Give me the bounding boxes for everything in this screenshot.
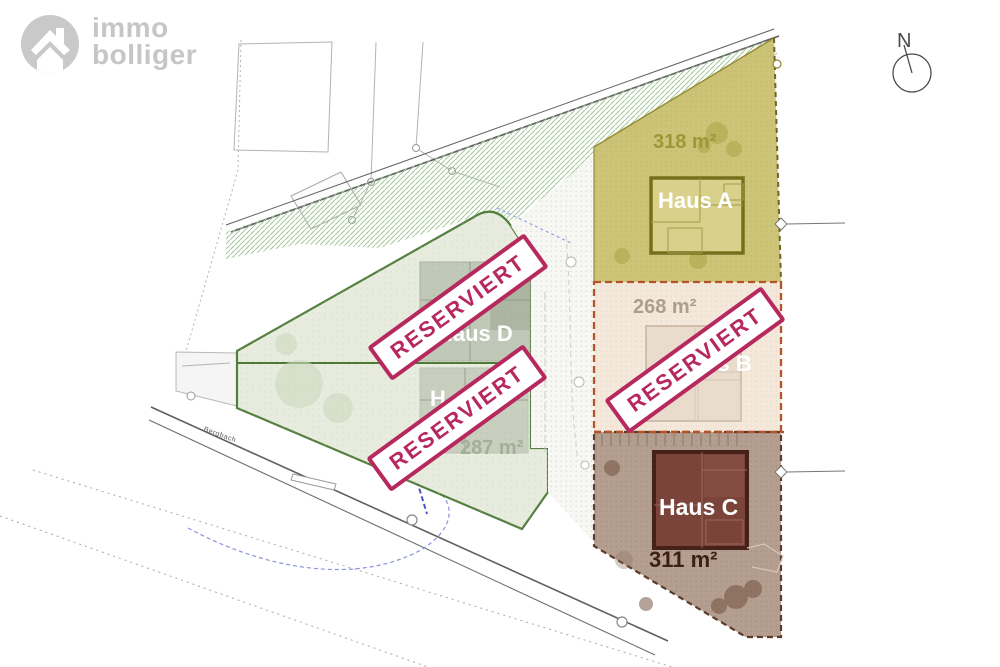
- haus-a-label: Haus A: [658, 188, 733, 214]
- boundary-markers: [775, 218, 845, 478]
- brand-line1: immo: [92, 14, 197, 41]
- north-compass: N: [884, 26, 944, 100]
- house-icon: [20, 14, 80, 74]
- plot-c-region: [594, 432, 784, 637]
- haus-c-label: Haus C: [659, 494, 738, 521]
- site-plan-page: immo bolliger N 318 m² Haus A 268 m² Hau…: [0, 0, 1000, 667]
- plot-e-area-label: 287 m²: [460, 437, 523, 460]
- north-label: N: [897, 30, 911, 52]
- brand-line2: bolliger: [92, 41, 197, 68]
- plot-b-area-label: 268 m²: [633, 296, 696, 319]
- brand-logo: immo bolliger: [20, 14, 197, 74]
- plot-c-area-label: 311 m²: [649, 547, 718, 573]
- boundary-point: [773, 60, 781, 68]
- plot-a-area-label: 318 m²: [653, 131, 716, 154]
